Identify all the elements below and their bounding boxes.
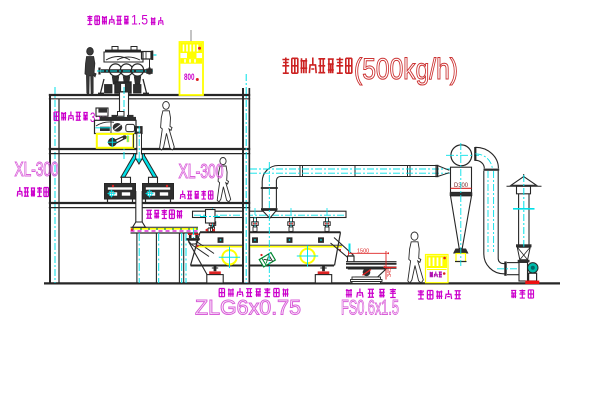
svg-text:1.5: 1.5	[131, 12, 148, 28]
svg-text:XL-300: XL-300	[15, 159, 59, 181]
svg-text:800: 800	[184, 72, 195, 82]
svg-text:345: 345	[387, 268, 393, 277]
svg-text:(500kg/h): (500kg/h)	[354, 53, 458, 86]
svg-text:FS0.6x1.5: FS0.6x1.5	[341, 297, 399, 320]
svg-text:ZLG6x0.75: ZLG6x0.75	[195, 297, 301, 320]
svg-text:XL-300: XL-300	[179, 161, 224, 183]
svg-text:1500: 1500	[357, 249, 369, 255]
